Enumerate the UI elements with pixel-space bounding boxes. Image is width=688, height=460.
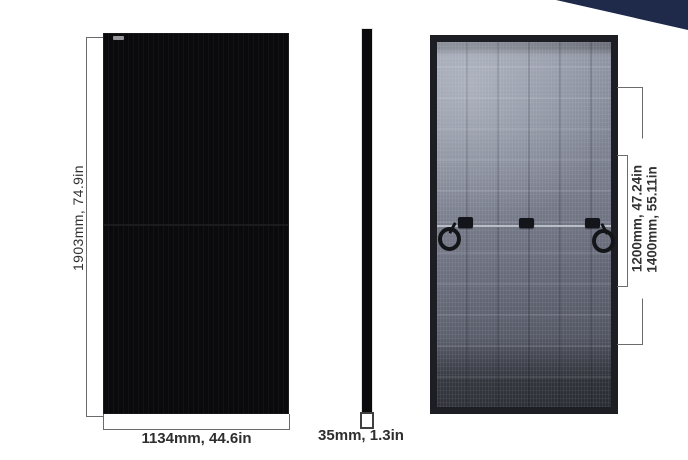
height-dimension-bracket [86, 37, 103, 417]
thickness-dimension-label: 35mm, 1.3in [296, 427, 426, 444]
junction-box-left [458, 217, 473, 228]
mount-outer-dimension-label: 1400mm, 55.11in [645, 140, 660, 300]
front-view-panel [103, 33, 289, 414]
width-dimension-label: 1134mm, 44.6in [103, 430, 290, 447]
back-view-panel [430, 35, 618, 414]
panel-dimension-diagram: 1903mm, 74.9in 1134mm, 44.6in 35mm, 1.3i… [0, 0, 688, 460]
corner-accent-triangle [556, 0, 688, 30]
cable-coil-right [592, 229, 615, 253]
mount-inner-dimension-label: 1200mm, 47.24in [630, 139, 645, 299]
mount-inner-dimension-bracket [617, 155, 628, 287]
height-dimension-label: 1903mm, 74.9in [70, 138, 86, 298]
front-panel-sticker [113, 36, 124, 40]
junction-box-center [519, 218, 534, 228]
side-view-panel [362, 29, 372, 412]
width-dimension-bracket [103, 414, 290, 430]
front-panel-midline [103, 224, 289, 226]
junction-box-right [585, 218, 600, 228]
cable-coil-left [438, 227, 461, 251]
